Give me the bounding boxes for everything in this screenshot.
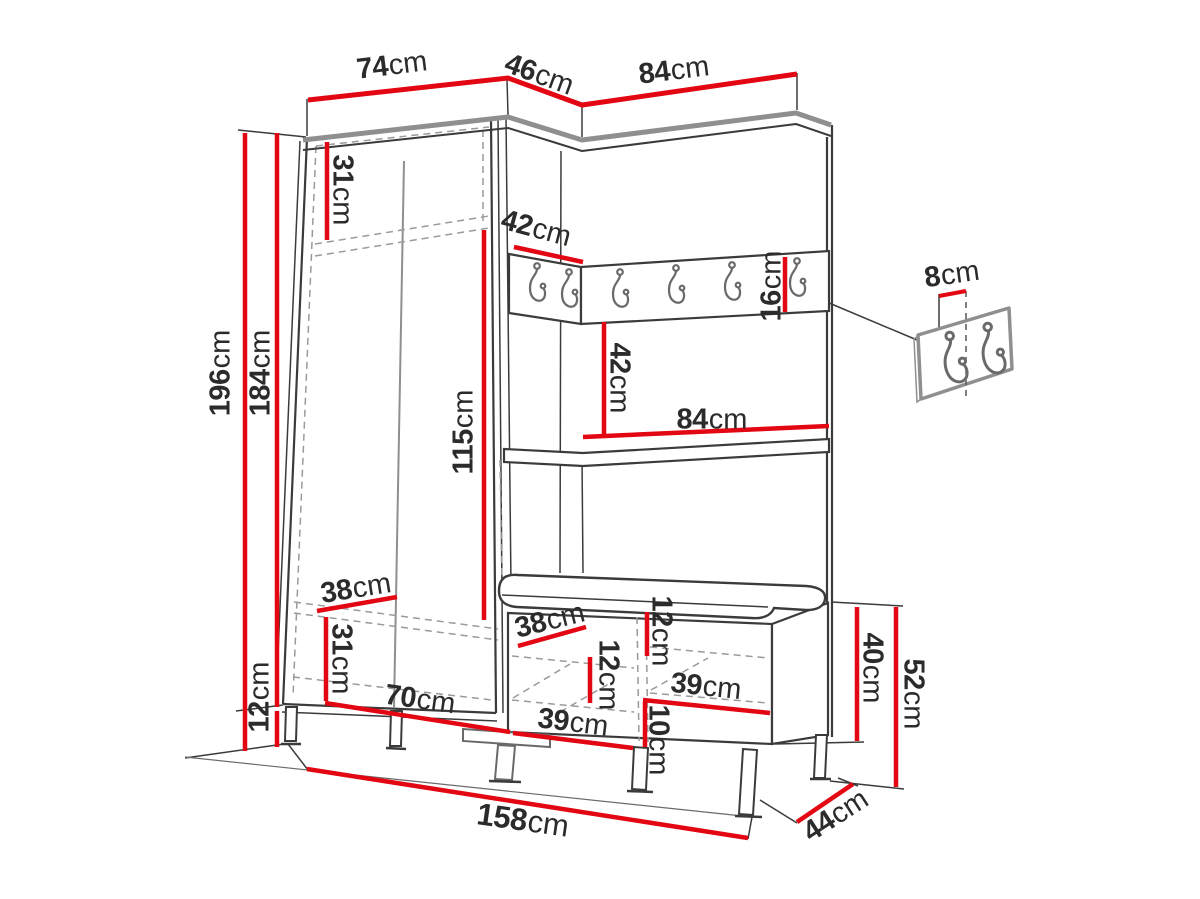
wall-shelf <box>504 439 829 466</box>
corner-divider-back <box>506 117 511 586</box>
hook-rail-main-face <box>581 251 829 324</box>
wardrobe-interior-dashed <box>293 127 502 700</box>
dim-line-interior-width <box>325 703 510 732</box>
dim-line-lower-depth <box>317 597 397 611</box>
bench-leg <box>739 749 757 815</box>
dim-line-shelf-width <box>583 426 829 437</box>
hook-rail <box>509 251 829 324</box>
dimension-diagram: 74cm 46cm 84cm 31cm 196cm 184cm 42cm 16c… <box>0 0 1200 899</box>
dim-line-bench-total-depth <box>797 784 853 822</box>
corner-divider-front <box>498 118 503 713</box>
bench-leg <box>814 735 827 778</box>
wardrobe <box>276 117 511 721</box>
bench-front-face <box>508 613 772 744</box>
diagram-drawing <box>0 0 1200 899</box>
dim-line-total-width <box>307 769 748 838</box>
wardrobe-right-edge <box>491 118 496 713</box>
dim-line-top-widths <box>308 74 797 105</box>
bench-leg <box>632 747 648 790</box>
top-edge-thick <box>303 113 831 140</box>
wardrobe-left-edge <box>283 138 307 704</box>
bench <box>499 575 828 744</box>
corner-seam <box>560 151 561 573</box>
floor-line <box>185 757 752 817</box>
bench-side-face <box>772 603 828 744</box>
top-edges <box>303 113 831 151</box>
dim-line-hook-spacing <box>939 291 966 296</box>
detail-hook-panel <box>914 291 1012 402</box>
junction-leg <box>495 745 515 780</box>
detail-leader-line <box>822 300 917 340</box>
wardrobe-leg <box>285 707 297 741</box>
corner-bend-lower <box>582 457 583 573</box>
